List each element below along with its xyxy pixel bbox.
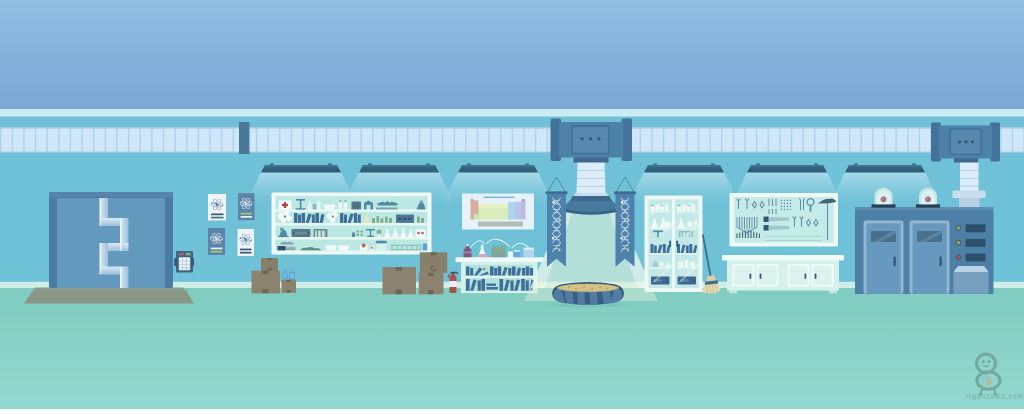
svg-text:rrgonzalez.com: rrgonzalez.com [966, 394, 1024, 401]
